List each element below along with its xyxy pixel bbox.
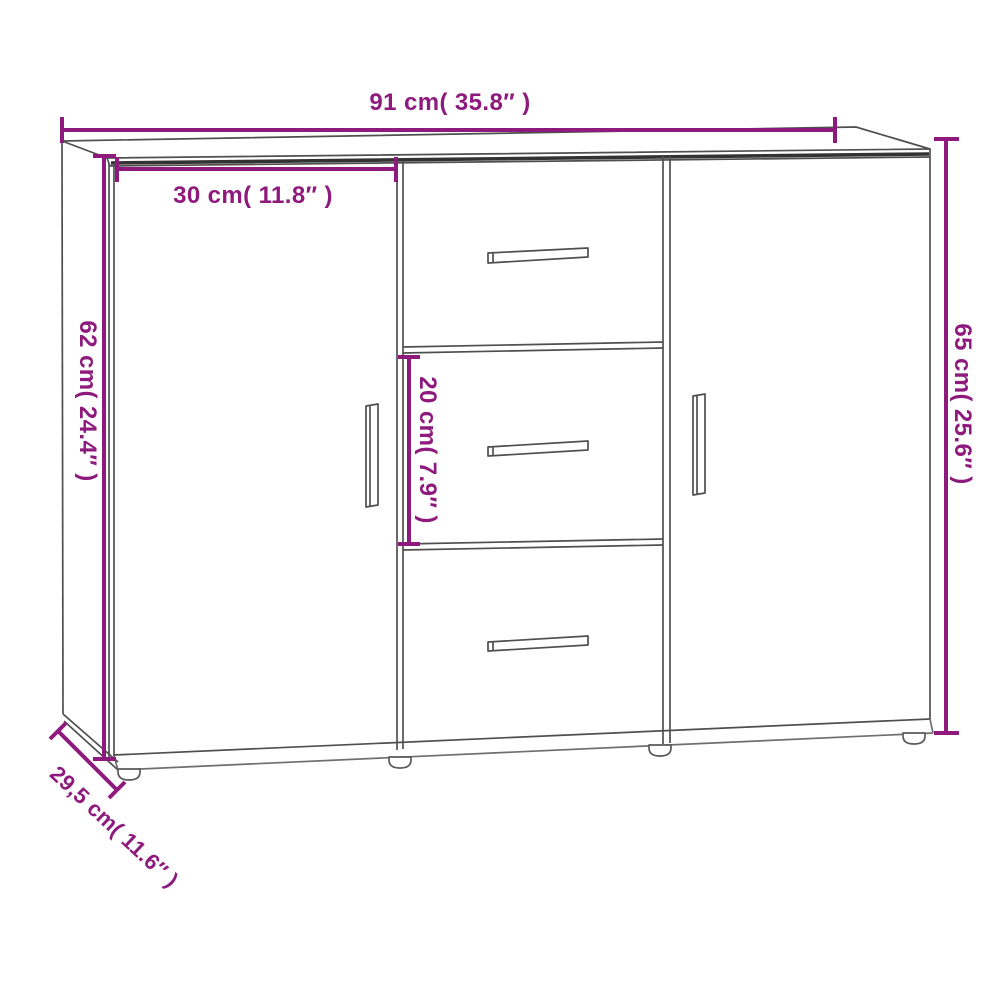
cabinet-feet [118,733,925,780]
drawer-1-2-gap [403,342,663,347]
dimension-lines [50,117,959,798]
drawer-handles [488,248,588,651]
drawer-1-handle [488,248,588,263]
drawer-3-handle [488,636,588,651]
dimension-diagram-canvas: 91 cm( 35.8″ ) 30 cm( 11.8″ ) 62 cm( 24.… [0,0,1000,1000]
cabinet-outline [62,127,933,780]
foot-4 [903,733,925,744]
drawer-2-handle [488,441,588,456]
door-width-dimension-label: 30 cm( 11.8″ ) [173,182,333,210]
drawer-2-3-gap-lower [403,545,663,550]
foot-1 [118,769,140,780]
cabinet-base [114,719,933,770]
drawer-1-2-gap-lower [403,348,663,353]
drawer-2-3-gap [403,539,663,544]
body-height-dimension-label: 62 cm( 24.4″ ) [73,320,101,481]
left-door-handle [366,404,378,507]
drawer-height-dimension-label: 20 cm( 7.9″ ) [413,376,441,523]
front-bottom-edge [114,719,930,755]
foot-2 [389,757,411,768]
right-door-handle [693,394,705,495]
overall-width-dimension-label: 91 cm( 35.8″ ) [369,89,530,117]
foot-3 [649,745,671,756]
overall-height-dimension-label: 65 cm( 25.6″ ) [948,323,976,484]
